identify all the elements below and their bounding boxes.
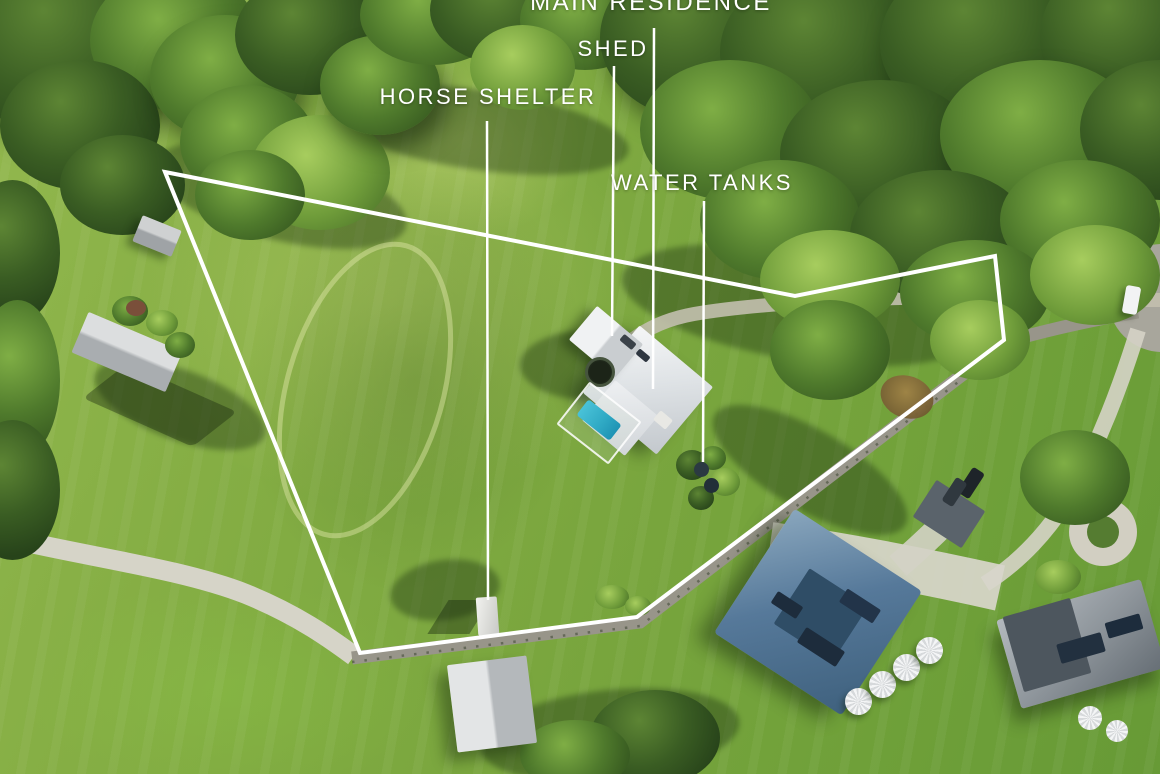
shed-pointer-line <box>612 66 614 336</box>
water-tanks-label: WATER TANKS <box>611 170 793 196</box>
water-tanks-pointer-line <box>703 201 704 462</box>
horse-shelter-label: HORSE SHELTER <box>380 84 597 110</box>
main-residence-label: MAIN RESIDENCE <box>530 0 772 17</box>
property-boundary-outline <box>165 172 1004 653</box>
annotation-layer <box>0 0 1160 774</box>
main-residence-pointer-line <box>653 28 654 389</box>
aerial-property-photo: MAIN RESIDENCE SHED HORSE SHELTER WATER … <box>0 0 1160 774</box>
horse-shelter-pointer-line <box>487 121 488 600</box>
shed-label: SHED <box>577 36 648 62</box>
